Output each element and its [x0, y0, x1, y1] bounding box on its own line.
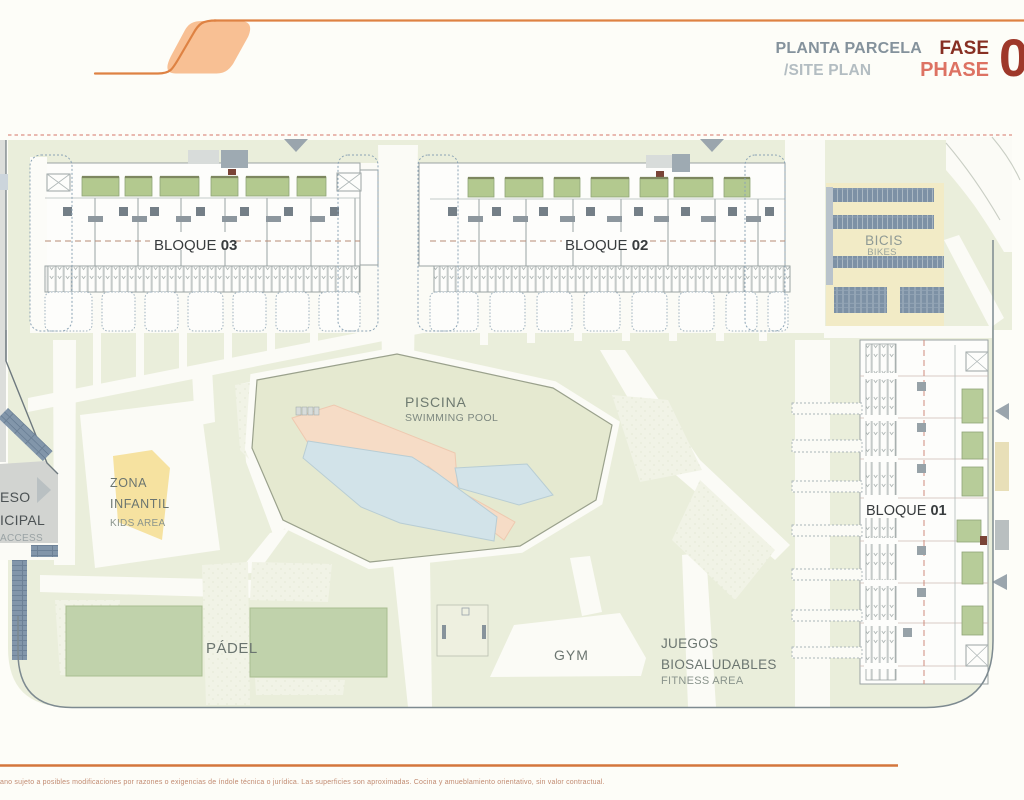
- svg-text:KIDS AREA: KIDS AREA: [110, 518, 166, 529]
- svg-text:BIOSALUDABLES: BIOSALUDABLES: [661, 657, 777, 672]
- svg-text:ESO: ESO: [0, 489, 30, 505]
- svg-text:BLOQUE 01: BLOQUE 01: [866, 503, 947, 519]
- svg-text:ACCESS: ACCESS: [0, 533, 43, 544]
- svg-text:FASE: FASE: [939, 38, 989, 59]
- svg-text:ano sujeto a posibles modifica: ano sujeto a posibles modificaciones por…: [0, 779, 605, 786]
- svg-text:ICIPAL: ICIPAL: [0, 512, 45, 528]
- svg-text:SWIMMING POOL: SWIMMING POOL: [405, 412, 498, 424]
- svg-text:ZONA: ZONA: [110, 476, 147, 490]
- svg-text:PLANTA PARCELA: PLANTA PARCELA: [776, 40, 923, 57]
- svg-text:PHASE: PHASE: [920, 59, 989, 81]
- svg-text:PÁDEL: PÁDEL: [206, 640, 258, 657]
- svg-text:FITNESS AREA: FITNESS AREA: [661, 675, 744, 687]
- svg-text:JUEGOS: JUEGOS: [661, 636, 718, 651]
- svg-text:BIKES: BIKES: [867, 247, 897, 258]
- svg-text:PISCINA: PISCINA: [405, 394, 467, 410]
- svg-text:BICIS: BICIS: [865, 233, 903, 248]
- svg-text:BLOQUE 03: BLOQUE 03: [154, 237, 237, 254]
- svg-text:GYM: GYM: [554, 647, 589, 663]
- svg-text:INFANTIL: INFANTIL: [110, 497, 170, 511]
- svg-text:BLOQUE 02: BLOQUE 02: [565, 237, 648, 254]
- svg-text:02: 02: [999, 29, 1024, 88]
- svg-text:/SITE PLAN: /SITE PLAN: [784, 62, 871, 79]
